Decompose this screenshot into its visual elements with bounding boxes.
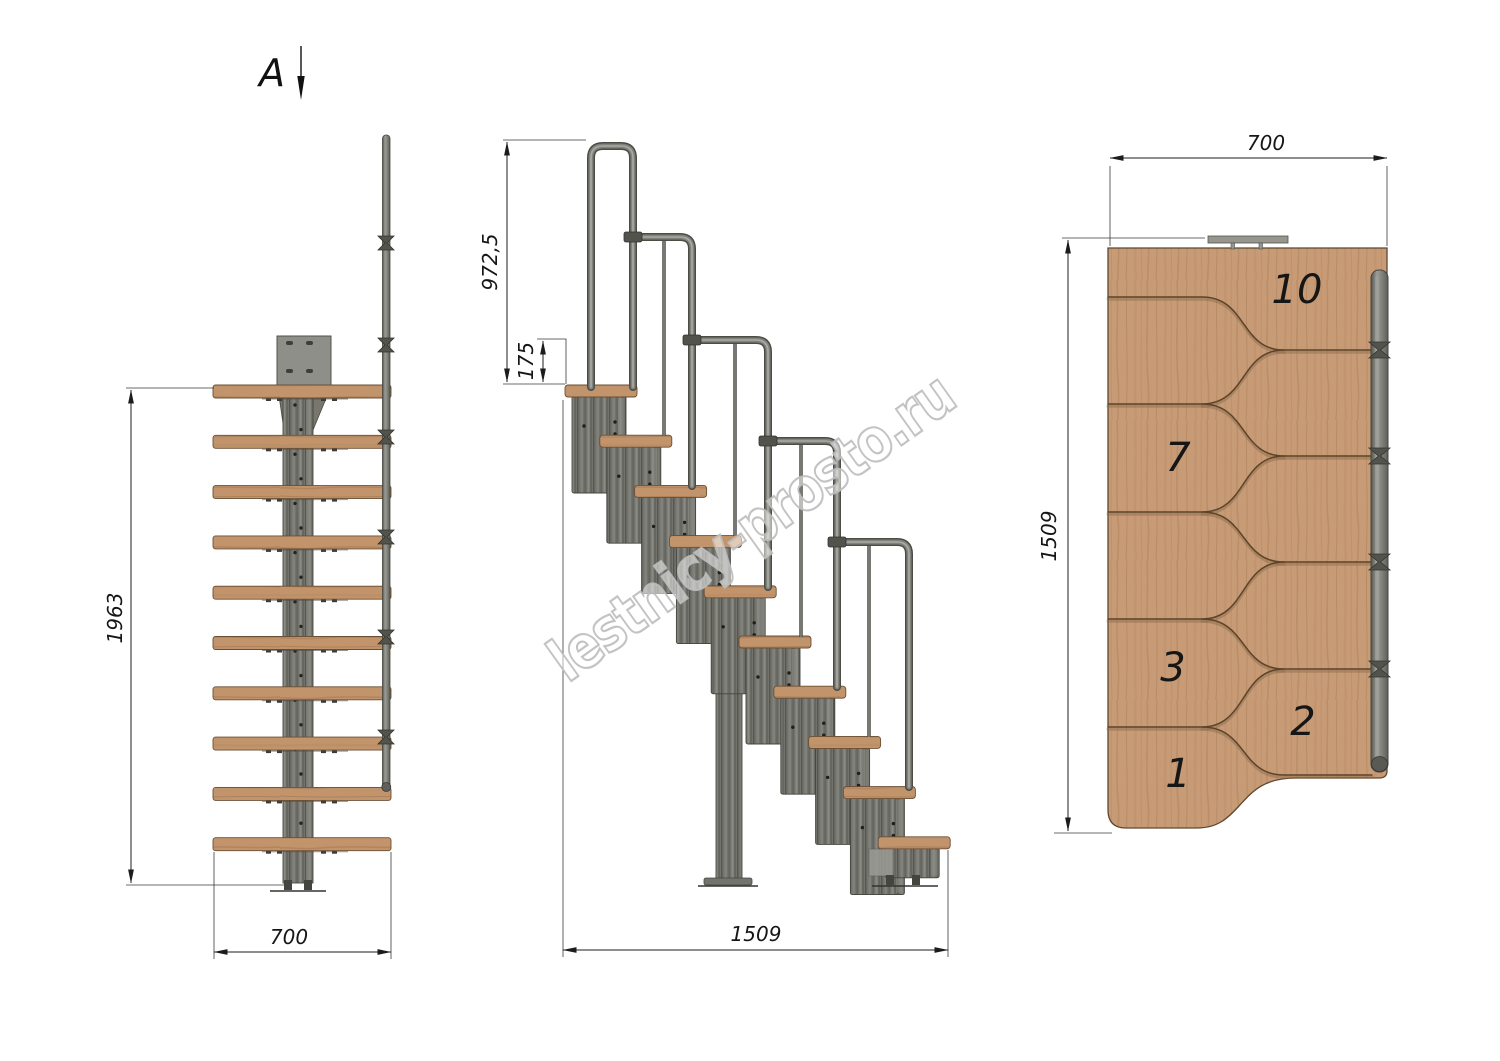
bolt [293, 551, 296, 554]
bolt [787, 671, 790, 674]
front-step [213, 486, 391, 499]
top-dim-width: 700 [1110, 131, 1387, 246]
front-step [213, 586, 391, 599]
dim-label-972-5: 972,5 [478, 233, 502, 290]
pole-connector [378, 236, 394, 250]
step-label-1: 1 [1165, 751, 1190, 797]
bolt [648, 471, 651, 474]
bolt [652, 525, 655, 528]
front-view: 1963 700 [103, 135, 394, 959]
staircase-drawing: A [0, 0, 1500, 1061]
wall-mount-plate [277, 336, 331, 389]
plan-wall-plate [1208, 236, 1288, 249]
bolt [791, 726, 794, 729]
bolt [293, 453, 296, 456]
bolt [753, 621, 756, 624]
bolt [582, 424, 585, 427]
section-marker: A [256, 46, 305, 100]
front-step [213, 737, 391, 750]
plan-wood-panel [1108, 248, 1387, 828]
bolt [861, 826, 864, 829]
pole-connector [378, 338, 394, 352]
bolt [299, 477, 302, 480]
step-label-3: 3 [1160, 645, 1185, 691]
side-tread [843, 787, 915, 799]
rail-clamp [828, 537, 846, 547]
plan-rail-end-cap [1372, 757, 1388, 772]
bolt [299, 428, 302, 431]
bolt [299, 822, 302, 825]
column-highlight [306, 390, 311, 881]
step-label-10: 10 [1272, 267, 1323, 313]
section-arrow-icon [297, 46, 304, 100]
dim-label-700-top: 700 [1247, 131, 1285, 155]
side-tread [878, 837, 950, 849]
bolt [722, 625, 725, 628]
side-tread [600, 435, 672, 447]
step-label-2: 2 [1290, 699, 1315, 745]
front-step [213, 838, 391, 851]
handrail-end-ball [382, 783, 391, 792]
dim-label-1509-side: 1509 [731, 922, 782, 946]
front-step [213, 687, 391, 700]
bolt [293, 502, 296, 505]
rail-clamp [624, 232, 642, 242]
bolt [892, 822, 895, 825]
side-tread [565, 385, 637, 397]
bolt [822, 722, 825, 725]
rail-clamp [683, 335, 701, 345]
bolt [617, 475, 620, 478]
front-step [213, 385, 391, 398]
front-step [213, 435, 391, 448]
section-label: A [256, 51, 285, 95]
bolt [756, 675, 759, 678]
bolt [683, 521, 686, 524]
bolt [299, 576, 302, 579]
bolt [299, 723, 302, 726]
bolt [299, 772, 302, 775]
plan-handrail [1369, 270, 1390, 772]
dim-label-700-front: 700 [270, 925, 308, 949]
support-column-base [704, 878, 752, 885]
dim-label-175: 175 [514, 342, 538, 380]
side-tread [809, 736, 881, 748]
module-highlight [931, 850, 937, 876]
dim-label-1963: 1963 [103, 593, 127, 644]
bolt [299, 625, 302, 628]
bolt [826, 776, 829, 779]
front-step [213, 637, 391, 650]
side-tread [739, 636, 811, 648]
side-dim-top-rise: 175 [514, 339, 566, 384]
step-label-7: 7 [1165, 435, 1191, 481]
rail-clamp [759, 436, 777, 446]
bolt [299, 674, 302, 677]
front-step [213, 536, 391, 549]
bolt [857, 772, 860, 775]
bolt [613, 420, 616, 423]
front-step [213, 787, 391, 800]
bolt [293, 403, 296, 406]
bolt [299, 526, 302, 529]
technical-drawing-canvas: A [0, 0, 1500, 1061]
top-view: 10 7 3 2 1 700 150 [1037, 131, 1390, 833]
dim-label-1509-top: 1509 [1037, 511, 1061, 562]
